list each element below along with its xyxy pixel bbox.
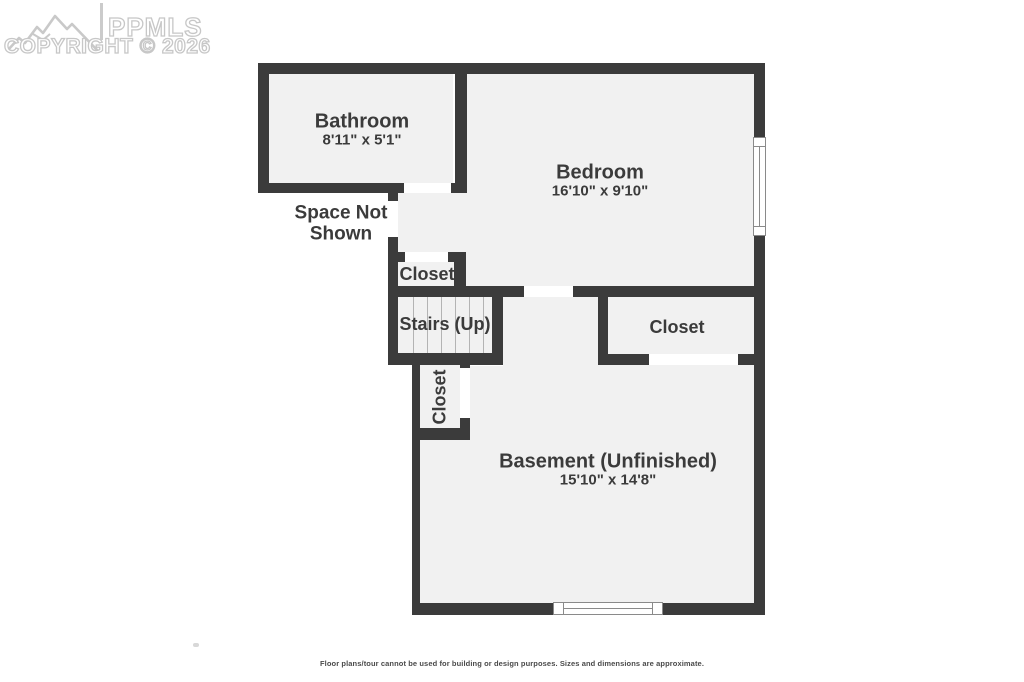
room-name: Bathroom bbox=[315, 110, 409, 132]
space-not-shown-line1: Space Not bbox=[295, 203, 388, 224]
artifact-speck bbox=[193, 643, 199, 647]
watermark-copyright: COPYRIGHT © 2026 bbox=[4, 35, 211, 59]
room-dimensions: 15'10" x 14'8" bbox=[499, 473, 717, 490]
door-opening bbox=[524, 286, 573, 297]
room-name: Basement (Unfinished) bbox=[499, 450, 717, 472]
wall bbox=[455, 63, 467, 193]
door-opening bbox=[405, 252, 448, 262]
bathroom-label: Bathroom 8'11" x 5'1" bbox=[315, 110, 409, 149]
footer-disclaimer: Floor plans/tour cannot be used for buil… bbox=[320, 659, 704, 668]
wall bbox=[412, 428, 470, 440]
space-not-shown-label: Space Not Shown bbox=[295, 203, 388, 246]
door-opening bbox=[388, 201, 398, 237]
floor-plan-canvas: PPMLS COPYRIGHT © 2026 bbox=[0, 0, 1024, 682]
room-name: Bedroom bbox=[552, 161, 648, 183]
space-not-shown-line2: Shown bbox=[295, 224, 388, 245]
right-closet-label: Closet bbox=[649, 317, 704, 337]
room-dimensions: 8'11" x 5'1" bbox=[315, 133, 409, 150]
wall bbox=[258, 63, 269, 193]
basement-label: Basement (Unfinished) 15'10" x 14'8" bbox=[499, 450, 717, 489]
upper-closet-label: Closet bbox=[399, 264, 454, 284]
watermark: PPMLS COPYRIGHT © 2026 bbox=[0, 0, 230, 70]
wall bbox=[388, 353, 503, 365]
bedroom-label: Bedroom 16'10" x 9'10" bbox=[552, 161, 648, 200]
wall bbox=[258, 63, 765, 74]
stairs-label: Stairs (Up) bbox=[399, 314, 490, 334]
room-dimensions: 16'10" x 9'10" bbox=[552, 184, 648, 201]
window bbox=[753, 137, 766, 236]
door-opening bbox=[404, 183, 451, 193]
door-opening bbox=[460, 368, 470, 418]
lower-closet-label: Closet bbox=[430, 369, 451, 424]
wall bbox=[388, 286, 765, 297]
door-opening bbox=[649, 354, 738, 365]
window bbox=[553, 602, 663, 615]
wall bbox=[412, 363, 420, 615]
